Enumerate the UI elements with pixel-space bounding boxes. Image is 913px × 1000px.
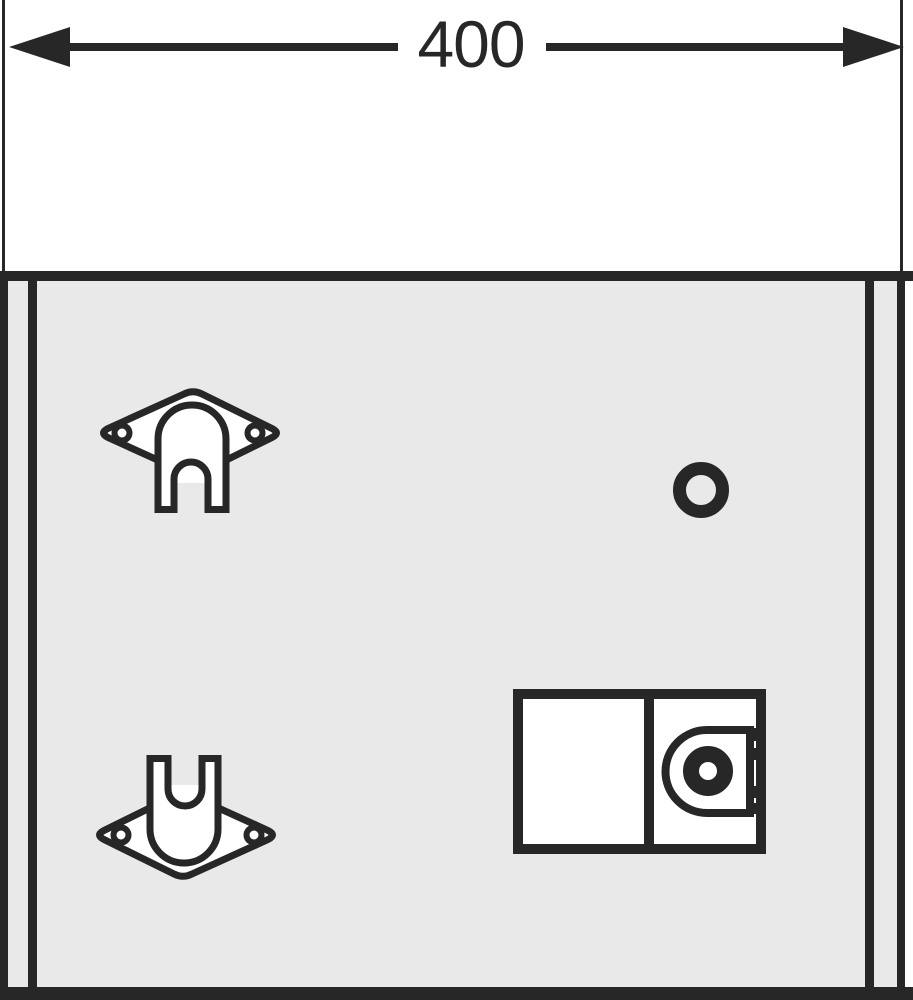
drawing-canvas: 400 (0, 0, 913, 1000)
lock-tab-4 (746, 803, 760, 814)
width-dimension: 400 (2, 0, 904, 272)
lock-box-left-cell (523, 699, 644, 844)
extension-line-right (900, 0, 903, 272)
lock-tab-2 (746, 748, 760, 760)
panel-bottom-edge (0, 987, 913, 1000)
dimension-line-right (546, 43, 845, 51)
panel-right-outer-edge (897, 271, 905, 1000)
cabinet-panel (0, 271, 913, 1000)
technical-drawing: 400 (0, 0, 913, 1000)
arrowhead-right-icon (843, 27, 904, 67)
lock-tab-3 (746, 786, 760, 798)
panel-right-inner-line (865, 281, 874, 987)
dimension-line-left (68, 43, 398, 51)
lock-cylinder-icon (691, 754, 725, 788)
panel-left-outer-edge (0, 271, 8, 1000)
lock-module (513, 689, 766, 854)
panel-top-edge (0, 271, 913, 281)
arrowhead-left-icon (9, 27, 70, 67)
panel-left-inner-line (28, 281, 37, 987)
extension-line-left (2, 0, 5, 272)
panel-face (8, 281, 897, 987)
dimension-value: 400 (417, 7, 524, 81)
lock-tab-1 (746, 728, 760, 741)
